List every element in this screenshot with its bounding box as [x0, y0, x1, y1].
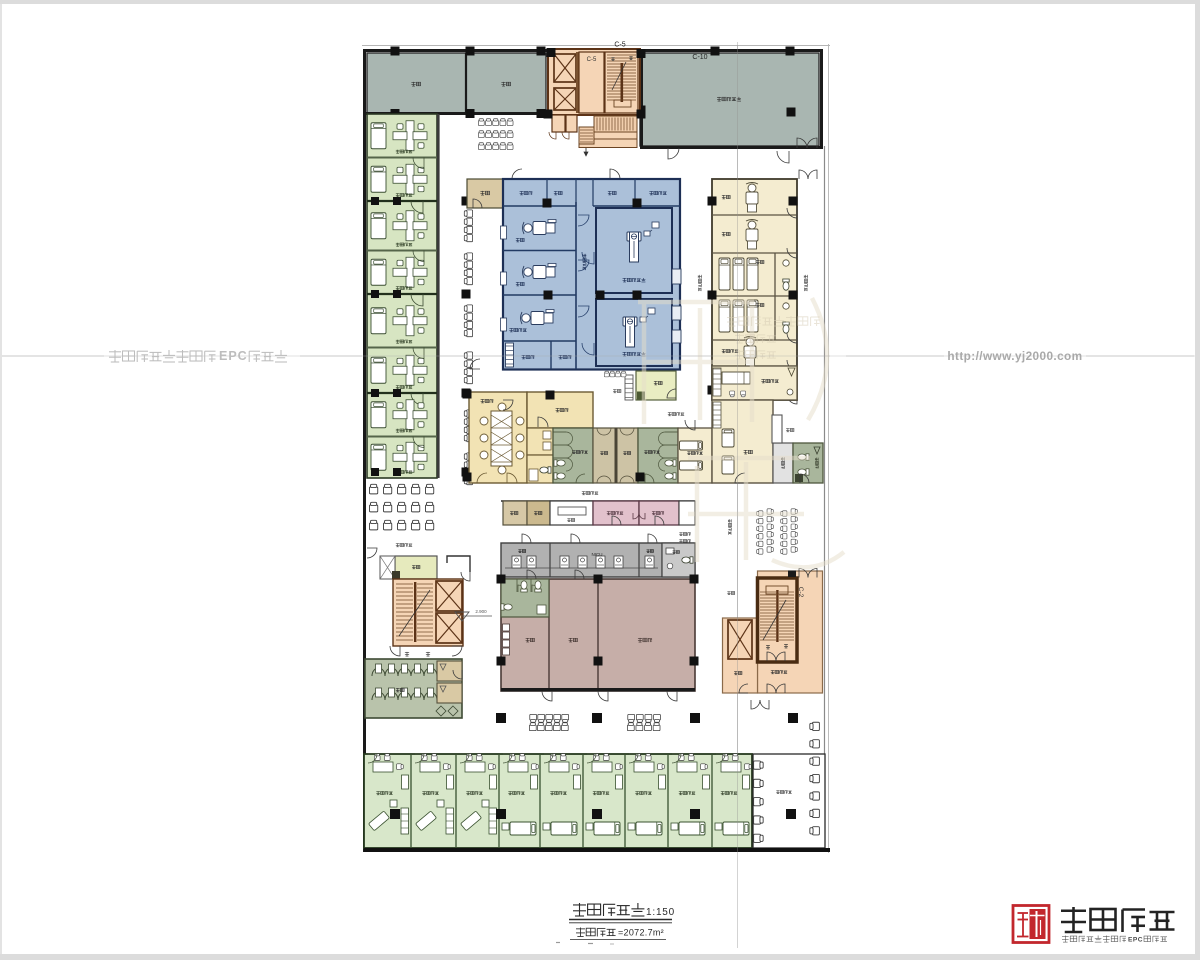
- svg-text:NICU: NICU: [592, 552, 603, 557]
- svg-text:1:150: 1:150: [646, 907, 675, 918]
- svg-text:C-5: C-5: [614, 42, 625, 49]
- svg-text:C-2: C-2: [797, 587, 804, 598]
- svg-text:C-10: C-10: [692, 54, 707, 61]
- svg-text:EPC: EPC: [219, 349, 248, 363]
- svg-text:2.900: 2.900: [475, 609, 487, 614]
- svg-text:EPC: EPC: [1128, 936, 1143, 943]
- svg-text:C-5: C-5: [587, 57, 597, 63]
- svg-text:=2072.7m²: =2072.7m²: [618, 928, 664, 938]
- svg-text:http://www.yj2000.com: http://www.yj2000.com: [947, 349, 1082, 363]
